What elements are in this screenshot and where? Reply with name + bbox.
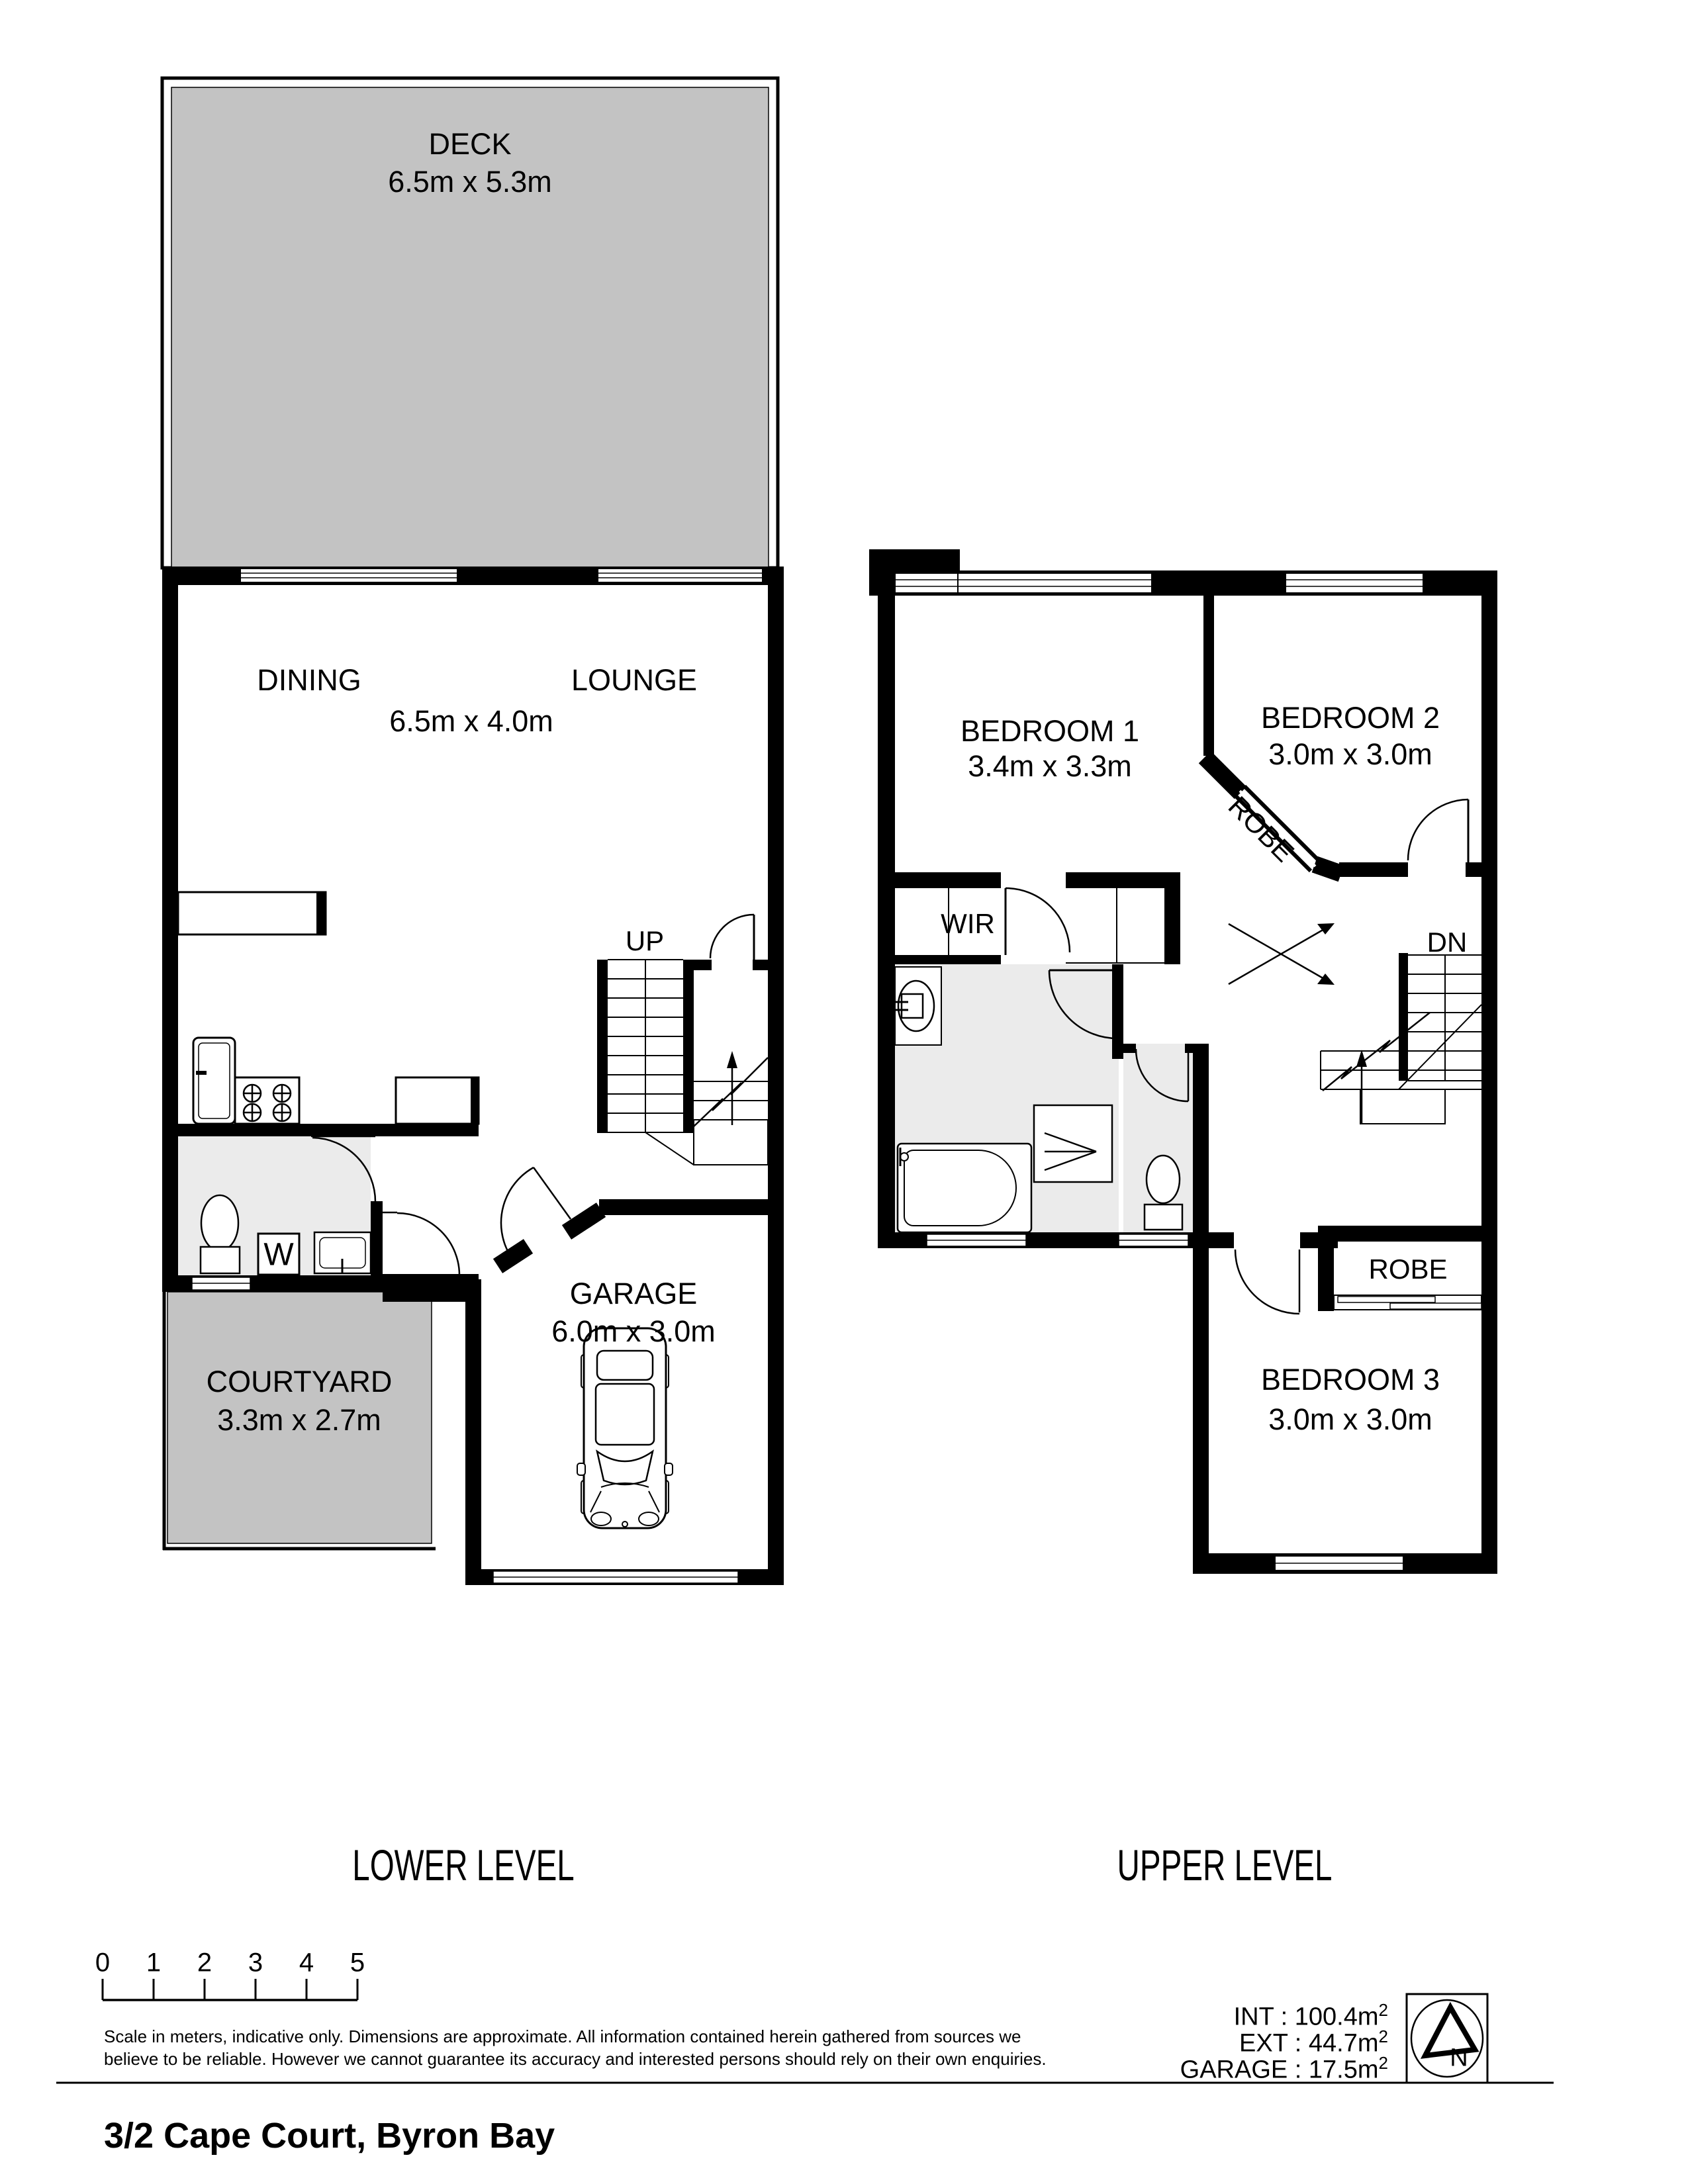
wc-toilet-icon — [1147, 1156, 1180, 1203]
bathroom — [895, 964, 1119, 1248]
stairs-down — [1321, 953, 1481, 1124]
dining-label: DINING — [257, 663, 361, 698]
washer-label: W — [263, 1237, 293, 1273]
area-int-sup: 2 — [1379, 2000, 1388, 2020]
floor-plan-canvas — [0, 0, 1688, 2184]
north-label: N — [1450, 2044, 1468, 2073]
bedroom2-door-arc — [1408, 799, 1468, 860]
scale-tick-3: 3 — [248, 1948, 263, 1978]
up-label: UP — [626, 925, 664, 957]
scale-tick-2: 2 — [197, 1948, 212, 1978]
area-garage: GARAGE : 17.5m2 — [1180, 2053, 1388, 2085]
bedroom3-label: BEDROOM 3 — [1261, 1363, 1440, 1397]
car-icon — [577, 1328, 673, 1528]
robe-label: ROBE — [1368, 1253, 1447, 1285]
garage-label: GARAGE — [570, 1277, 698, 1311]
area-garage-sup: 2 — [1379, 2053, 1388, 2073]
courtyard-label: COURTYARD — [207, 1365, 393, 1399]
bedroom3-door-arc — [1235, 1250, 1299, 1314]
scale-tick-0: 0 — [95, 1948, 110, 1978]
scale-tick-1: 1 — [146, 1948, 161, 1978]
north-arrow-icon — [1407, 1994, 1487, 2083]
stairs-up — [597, 960, 768, 1165]
garage-dims: 6.0m x 3.0m — [551, 1314, 716, 1349]
lower-level-plan — [162, 78, 784, 1585]
deck-label: DECK — [428, 127, 511, 161]
deck-dims: 6.5m x 5.3m — [388, 165, 552, 199]
disclaimer-line-2: believe to be reliable. However we canno… — [104, 2049, 1047, 2070]
lounge-label: LOUNGE — [571, 663, 697, 698]
entry-door-arc — [501, 1167, 534, 1255]
stair-hall-door-arc — [710, 915, 754, 958]
courtyard-dims: 3.3m x 2.7m — [217, 1403, 381, 1437]
stair-direction-arrow — [727, 1051, 737, 1068]
bathtub-icon — [898, 1144, 1031, 1232]
dn-label: DN — [1427, 927, 1468, 958]
disclaimer-line-1: Scale in meters, indicative only. Dimens… — [104, 2026, 1021, 2047]
bedroom2-label: BEDROOM 2 — [1261, 701, 1440, 735]
scale-tick-4: 4 — [299, 1948, 314, 1978]
bedroom1-label: BEDROOM 1 — [961, 714, 1139, 749]
scale-bar — [103, 1979, 357, 2000]
kitchen — [178, 892, 479, 1124]
scale-tick-5: 5 — [350, 1948, 365, 1978]
stair-direction-arrow-upper — [1356, 1050, 1367, 1067]
area-ext-sup: 2 — [1379, 2026, 1388, 2046]
wir-label: WIR — [941, 908, 995, 940]
living-dims: 6.5m x 4.0m — [389, 704, 553, 739]
courtyard-door-arc — [397, 1213, 459, 1275]
upper-level-title: UPPER LEVEL — [1117, 1840, 1333, 1890]
page-title: 3/2 Cape Court, Byron Bay — [104, 2115, 555, 2156]
toilet-icon — [201, 1195, 238, 1251]
bedroom3-dims: 3.0m x 3.0m — [1268, 1402, 1432, 1437]
lower-level-title: LOWER LEVEL — [352, 1840, 574, 1890]
area-garage-text: GARAGE : 17.5m — [1180, 2056, 1379, 2084]
hall-direction-arrows — [1229, 923, 1335, 985]
bedroom1-door-arc — [1006, 888, 1070, 952]
bedroom1-dims: 3.4m x 3.3m — [968, 749, 1132, 784]
floorplan-page: DECK 6.5m x 5.3m DINING LOUNGE 6.5m x 4.… — [0, 0, 1688, 2184]
bedroom2-dims: 3.0m x 3.0m — [1268, 737, 1432, 772]
